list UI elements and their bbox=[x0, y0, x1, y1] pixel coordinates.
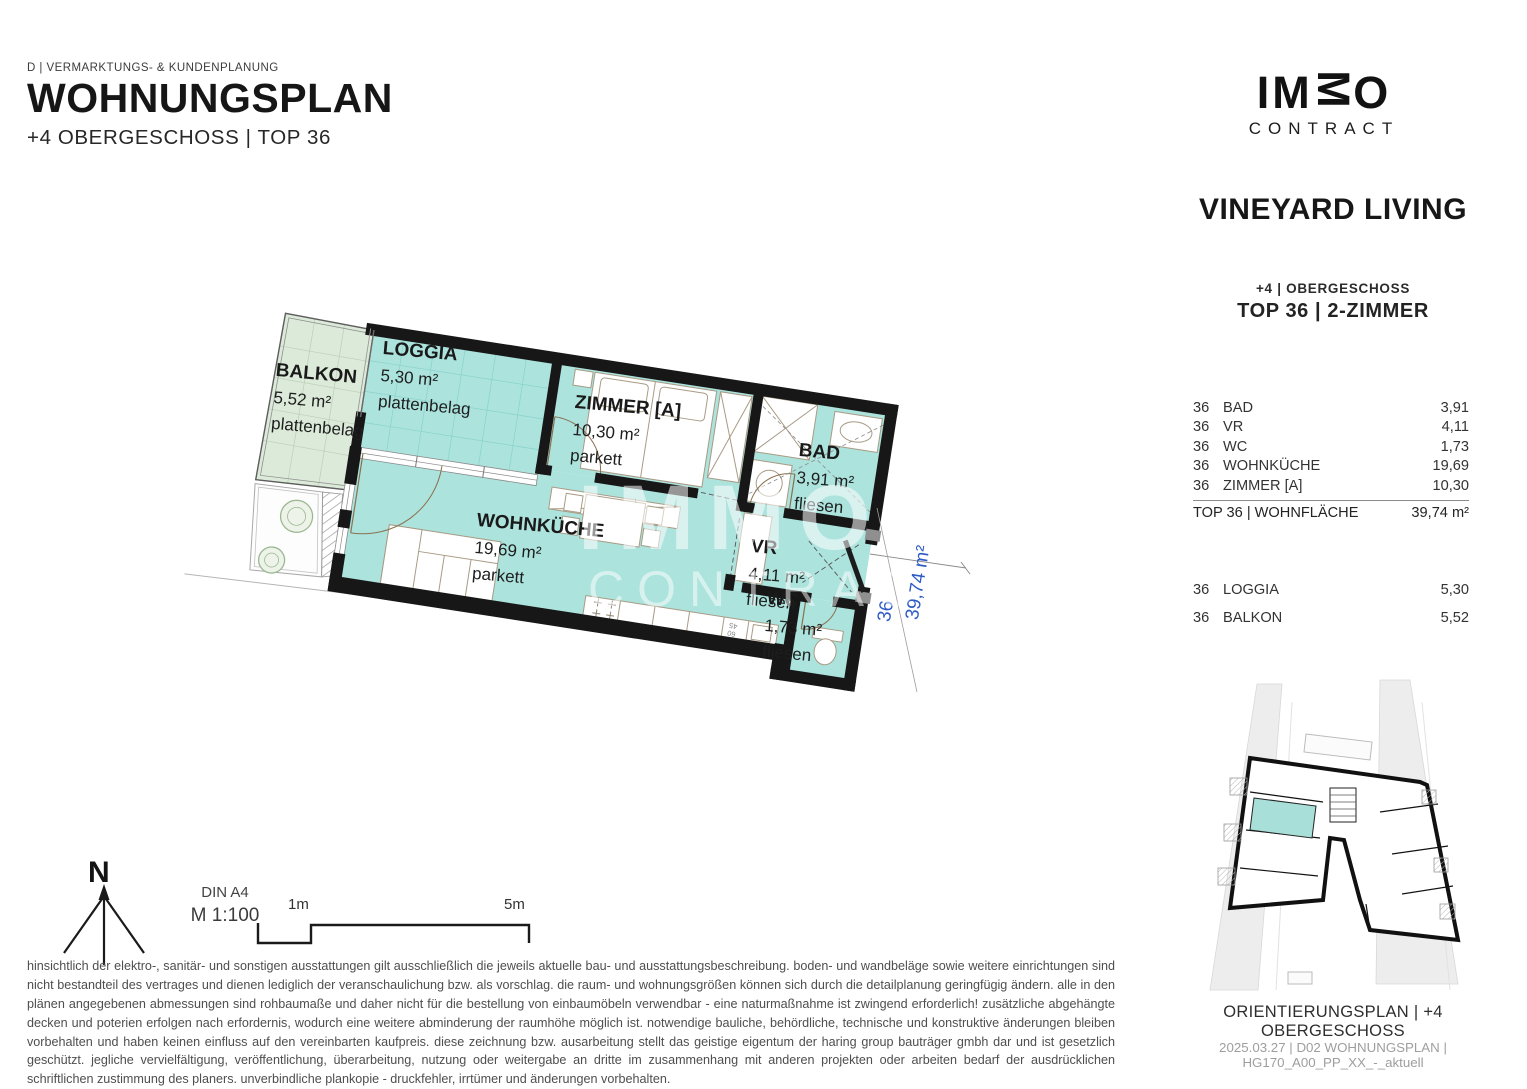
row-value: 5,52 bbox=[1409, 605, 1469, 633]
row-value: 3,91 bbox=[1409, 399, 1469, 418]
disclaimer-text: hinsichtlich der elektro-, sanitär- und … bbox=[27, 957, 1115, 1089]
page-subtitle: +4 OBERGESCHOSS | TOP 36 bbox=[27, 126, 393, 150]
table-row: 36LOGGIA5,30 bbox=[1193, 577, 1469, 605]
logo-letters-im: IM bbox=[1257, 67, 1313, 118]
table-row: 36BALKON5,52 bbox=[1193, 605, 1469, 633]
logo-letter-o: O bbox=[1353, 67, 1391, 118]
nightstand bbox=[573, 369, 593, 388]
label-balkon: BALKON 5,52 m² plattenbelag bbox=[270, 358, 369, 445]
immo-contract-logo: IMMO CONTRACT bbox=[1232, 70, 1416, 139]
label-wohnkueche: WOHNKÜCHE 19,69 m² parkett bbox=[471, 508, 605, 598]
scale-label: M 1:100 bbox=[170, 905, 280, 927]
logo-rotated-m: M bbox=[1310, 70, 1355, 111]
row-room: LOGGIA bbox=[1223, 577, 1409, 605]
floorplan-drawing: 60 45 bbox=[120, 268, 1000, 940]
orientation-caption: ORIENTIERUNGSPLAN | +4 OBERGESCHOSS bbox=[1150, 1003, 1516, 1041]
row-room: BALKON bbox=[1223, 605, 1409, 633]
row-no: 36 bbox=[1193, 438, 1223, 457]
logo-wordmark: IMMO bbox=[1232, 70, 1416, 115]
row-value: 4,11 bbox=[1409, 418, 1469, 437]
chair bbox=[641, 529, 660, 548]
row-no: 36 bbox=[1193, 418, 1223, 437]
total-label: TOP 36 | WOHNFLÄCHE bbox=[1193, 505, 1411, 521]
scale-tick-5m: 5m bbox=[504, 896, 525, 913]
chair bbox=[645, 506, 664, 525]
page-title: WOHNUNGSPLAN bbox=[27, 77, 393, 120]
unit-top-label: TOP 36 | 2-ZIMMER bbox=[1180, 300, 1486, 323]
unit-floor: +4 | OBERGESCHOSS bbox=[1180, 281, 1486, 296]
row-room: WOHNKÜCHE bbox=[1223, 457, 1409, 476]
label-zimmer-a: ZIMMER [A] 10,30 m² parkett bbox=[569, 390, 682, 478]
scale-tick-1m: 1m bbox=[288, 896, 309, 913]
row-no: 36 bbox=[1193, 577, 1223, 605]
table-row: 36VR4,11 bbox=[1193, 418, 1469, 437]
outdoor-rows: 36LOGGIA5,30 36BALKON5,52 bbox=[1193, 577, 1469, 632]
label-wc: WC 1,73 m² fliesen bbox=[761, 586, 825, 670]
row-no: 36 bbox=[1193, 605, 1223, 633]
paper-format: DIN A4 bbox=[180, 884, 270, 901]
chair bbox=[564, 493, 583, 512]
row-room: BAD bbox=[1223, 399, 1409, 418]
row-value: 19,69 bbox=[1409, 457, 1469, 476]
orientation-plan bbox=[1180, 672, 1520, 1002]
table-row: 36BAD3,91 bbox=[1193, 399, 1469, 418]
annex-outline bbox=[1304, 734, 1372, 760]
row-value: 5,30 bbox=[1409, 577, 1469, 605]
plan-category: D | VERMARKTUNGS- & KUNDENPLANUNG bbox=[27, 62, 393, 74]
scale-bar bbox=[258, 923, 529, 943]
row-room: ZIMMER [A] bbox=[1223, 477, 1409, 496]
table-total-row: TOP 36 | WOHNFLÄCHE39,74 m² bbox=[1193, 500, 1469, 521]
stair-core bbox=[1330, 788, 1356, 822]
logo-contract-line: CONTRACT bbox=[1232, 119, 1416, 139]
table-row: 36WC1,73 bbox=[1193, 438, 1469, 457]
label-bad: BAD 3,91 m² fliesen bbox=[793, 438, 857, 522]
dimension-unit-number: 36 bbox=[874, 599, 899, 623]
row-no: 36 bbox=[1193, 457, 1223, 476]
floorplan-sheet: { "header": { "category": "D | VERMARKTU… bbox=[0, 0, 1527, 1080]
label-loggia: LOGGIA 5,30 m² plattenbelag bbox=[377, 336, 476, 423]
sheet-header: D | VERMARKTUNGS- & KUNDENPLANUNG WOHNUN… bbox=[27, 62, 393, 150]
table-row: 36ZIMMER [A]10,30 bbox=[1193, 477, 1469, 496]
table-row: 36WOHNKÜCHE19,69 bbox=[1193, 457, 1469, 476]
row-value: 1,73 bbox=[1409, 438, 1469, 457]
sheet-footer-meta: 2025.03.27 | D02 WOHNUNGSPLAN | HG170_A0… bbox=[1150, 1040, 1516, 1070]
row-room: WC bbox=[1223, 438, 1409, 457]
row-value: 10,30 bbox=[1409, 477, 1469, 496]
unit-summary: +4 | OBERGESCHOSS TOP 36 | 2-ZIMMER bbox=[1180, 281, 1486, 323]
area-table: 36BAD3,91 36VR4,11 36WC1,73 36WOHNKÜCHE1… bbox=[1193, 399, 1469, 632]
total-value: 39,74 m² bbox=[1411, 505, 1469, 521]
project-name: VINEYARD LIVING bbox=[1180, 193, 1486, 227]
row-room: VR bbox=[1223, 418, 1409, 437]
row-no: 36 bbox=[1193, 399, 1223, 418]
row-no: 36 bbox=[1193, 477, 1223, 496]
